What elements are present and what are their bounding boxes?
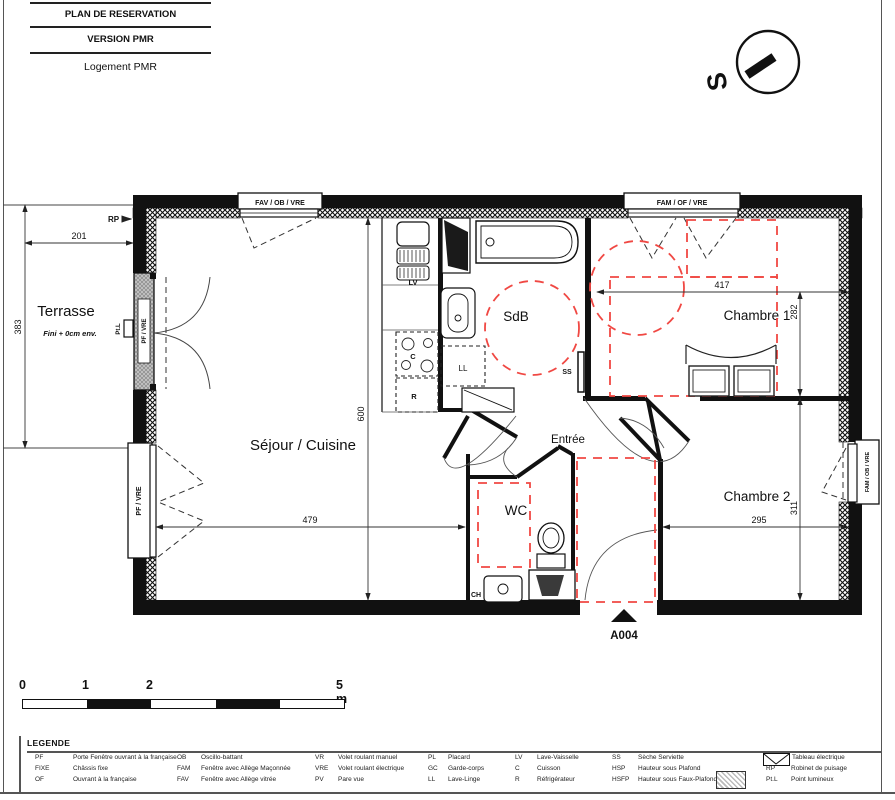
dim-ch1-width: 417 bbox=[714, 280, 729, 290]
dim-ch1-height: 282 bbox=[789, 304, 799, 319]
interior-walls bbox=[382, 218, 849, 600]
window-left-lower-label: PF / VRE bbox=[136, 486, 143, 516]
dim-sejour-height: 600 bbox=[356, 406, 366, 421]
bed bbox=[686, 345, 776, 396]
legend-entry: VRVolet roulant manuel bbox=[315, 754, 397, 761]
dim-ch2-width: 295 bbox=[751, 515, 766, 525]
legend-entry: PLPlacard bbox=[428, 754, 470, 761]
kitchen: LV C R bbox=[382, 222, 438, 412]
floor-plan-page: PLAN DE RESERVATION VERSION PMR Logement… bbox=[0, 0, 895, 800]
duct-shaft bbox=[442, 218, 470, 273]
scale-tick-2: 2 bbox=[146, 678, 153, 692]
legend-entry: RPRobinet de puisage bbox=[766, 765, 847, 772]
terrace-note: Fini + 0cm env. bbox=[43, 329, 97, 338]
entry-door bbox=[585, 530, 657, 622]
lavelinge-label: LL bbox=[459, 364, 468, 373]
window-right-chambre2: FAM / OB / VRE bbox=[822, 440, 879, 504]
sdb-label: SdB bbox=[503, 309, 529, 324]
refrigerator bbox=[396, 378, 438, 412]
legend-entry: Pt.LPoint lumineux bbox=[766, 776, 834, 783]
legend-entry: GCGarde-corps bbox=[428, 765, 484, 772]
legend-border bbox=[19, 736, 21, 793]
hsfp-hatch-swatch bbox=[716, 771, 746, 789]
window-left-lower: PF / VRE bbox=[128, 443, 204, 558]
bathroom: LL SdB SS bbox=[441, 218, 584, 392]
legend-entry: PFPorte Fenêtre ouvrant à la française bbox=[35, 754, 177, 761]
chambre1-label: Chambre 1 bbox=[724, 308, 791, 323]
compass-letter: S bbox=[701, 70, 734, 93]
window-left-upper: PF / VRE bbox=[134, 273, 210, 390]
wc-vanity bbox=[529, 570, 575, 600]
cooktop bbox=[396, 332, 438, 376]
window-top-right-label: FAM / OF / VRE bbox=[657, 200, 708, 207]
legend-entry: FAVFenêtre avec Allège vitrée bbox=[177, 776, 276, 783]
chambre1: Chambre 1 417 282 bbox=[590, 220, 848, 396]
pmr-rect-wc bbox=[478, 483, 530, 567]
towel-dryer bbox=[578, 352, 584, 392]
legend-entry: OFOuvrant à la française bbox=[35, 776, 137, 783]
legend-title: LEGENDE bbox=[27, 738, 70, 748]
dim-terrasse-width: 201 bbox=[71, 231, 86, 241]
terrace: Terrasse Fini + 0cm env. 201 383 RP Pt.L bbox=[3, 205, 133, 448]
legend-entry: OBOscillo-battant bbox=[177, 754, 243, 761]
legend-entry: HSPHauteur sous Plafond bbox=[612, 765, 701, 772]
chambre1-door bbox=[584, 398, 689, 462]
chambre2: Chambre 2 295 311 bbox=[663, 398, 848, 600]
chambre2-label: Chambre 2 bbox=[724, 489, 791, 504]
page-bottom-border bbox=[0, 792, 895, 794]
wc-door bbox=[504, 448, 558, 477]
window-top-right: FAM / OF / VRE bbox=[624, 193, 740, 258]
scale-tick-0: 0 bbox=[19, 678, 26, 692]
bathtub bbox=[476, 221, 578, 263]
rp-label: RP bbox=[108, 215, 120, 224]
scale-bar: 0 1 2 5 m bbox=[22, 678, 345, 712]
sejour-label: Séjour / Cuisine bbox=[250, 437, 356, 454]
window-top-left-label: FAV / OB / VRE bbox=[255, 200, 305, 207]
entry-door-marker bbox=[611, 609, 637, 622]
legend-entry: SSSèche Serviette bbox=[612, 754, 684, 761]
entree-label: Entrée bbox=[551, 434, 585, 446]
pmr-circle-sdb bbox=[485, 281, 579, 375]
north-arrow: S bbox=[701, 31, 799, 93]
legend-entry: CCuisson bbox=[515, 765, 560, 772]
point-lumineux-symbol bbox=[124, 320, 133, 337]
legend-entry: LLLave-Linge bbox=[428, 776, 480, 783]
terrace-label: Terrasse bbox=[37, 303, 95, 320]
kitchen-sink bbox=[397, 222, 429, 280]
legend-entry: LVLave-Vaisselle bbox=[515, 754, 579, 761]
scale-tick-1: 1 bbox=[82, 678, 89, 692]
refrigerateur-label: R bbox=[411, 392, 417, 401]
dim-sejour-width: 479 bbox=[302, 515, 317, 525]
dim-terrasse-height: 383 bbox=[13, 319, 23, 334]
legend-entry: RRéfrigérateur bbox=[515, 776, 575, 783]
legend-divider bbox=[27, 751, 881, 753]
legend-entry: Tableau électrique bbox=[792, 754, 845, 761]
ss-label: SS bbox=[562, 369, 572, 376]
legend-entry: FAMFenêtre avec Allège Maçonnée bbox=[177, 765, 291, 772]
wc-label: WC bbox=[505, 503, 528, 518]
pmr-circle-ch1 bbox=[590, 241, 684, 335]
window-right-label: FAM / OB / VRE bbox=[865, 452, 871, 493]
scale-bar-graphic bbox=[22, 699, 345, 709]
sdb-door bbox=[468, 408, 517, 465]
legend-entry: FIXEChâssis fixe bbox=[35, 765, 108, 772]
window-top-left: FAV / OB / VRE bbox=[238, 193, 322, 248]
entry-door-label: A004 bbox=[610, 630, 638, 642]
lv-label: LV bbox=[408, 278, 417, 287]
water-heater bbox=[484, 576, 522, 602]
ch-label: CH bbox=[471, 592, 481, 599]
ptl-label: Pt.L bbox=[116, 323, 122, 335]
cuisson-label: C bbox=[410, 352, 416, 361]
dim-ch2-height: 311 bbox=[789, 501, 799, 515]
washbasin bbox=[441, 288, 475, 338]
legend-entry: PVPare vue bbox=[315, 776, 364, 783]
legend-entry: HSFPHauteur sous Faux-Plafond bbox=[612, 776, 717, 783]
legend-entry: VREVolet roulant électrique bbox=[315, 765, 404, 772]
window-left-upper-label: PF / VRE bbox=[142, 318, 148, 343]
toilet bbox=[537, 523, 565, 568]
